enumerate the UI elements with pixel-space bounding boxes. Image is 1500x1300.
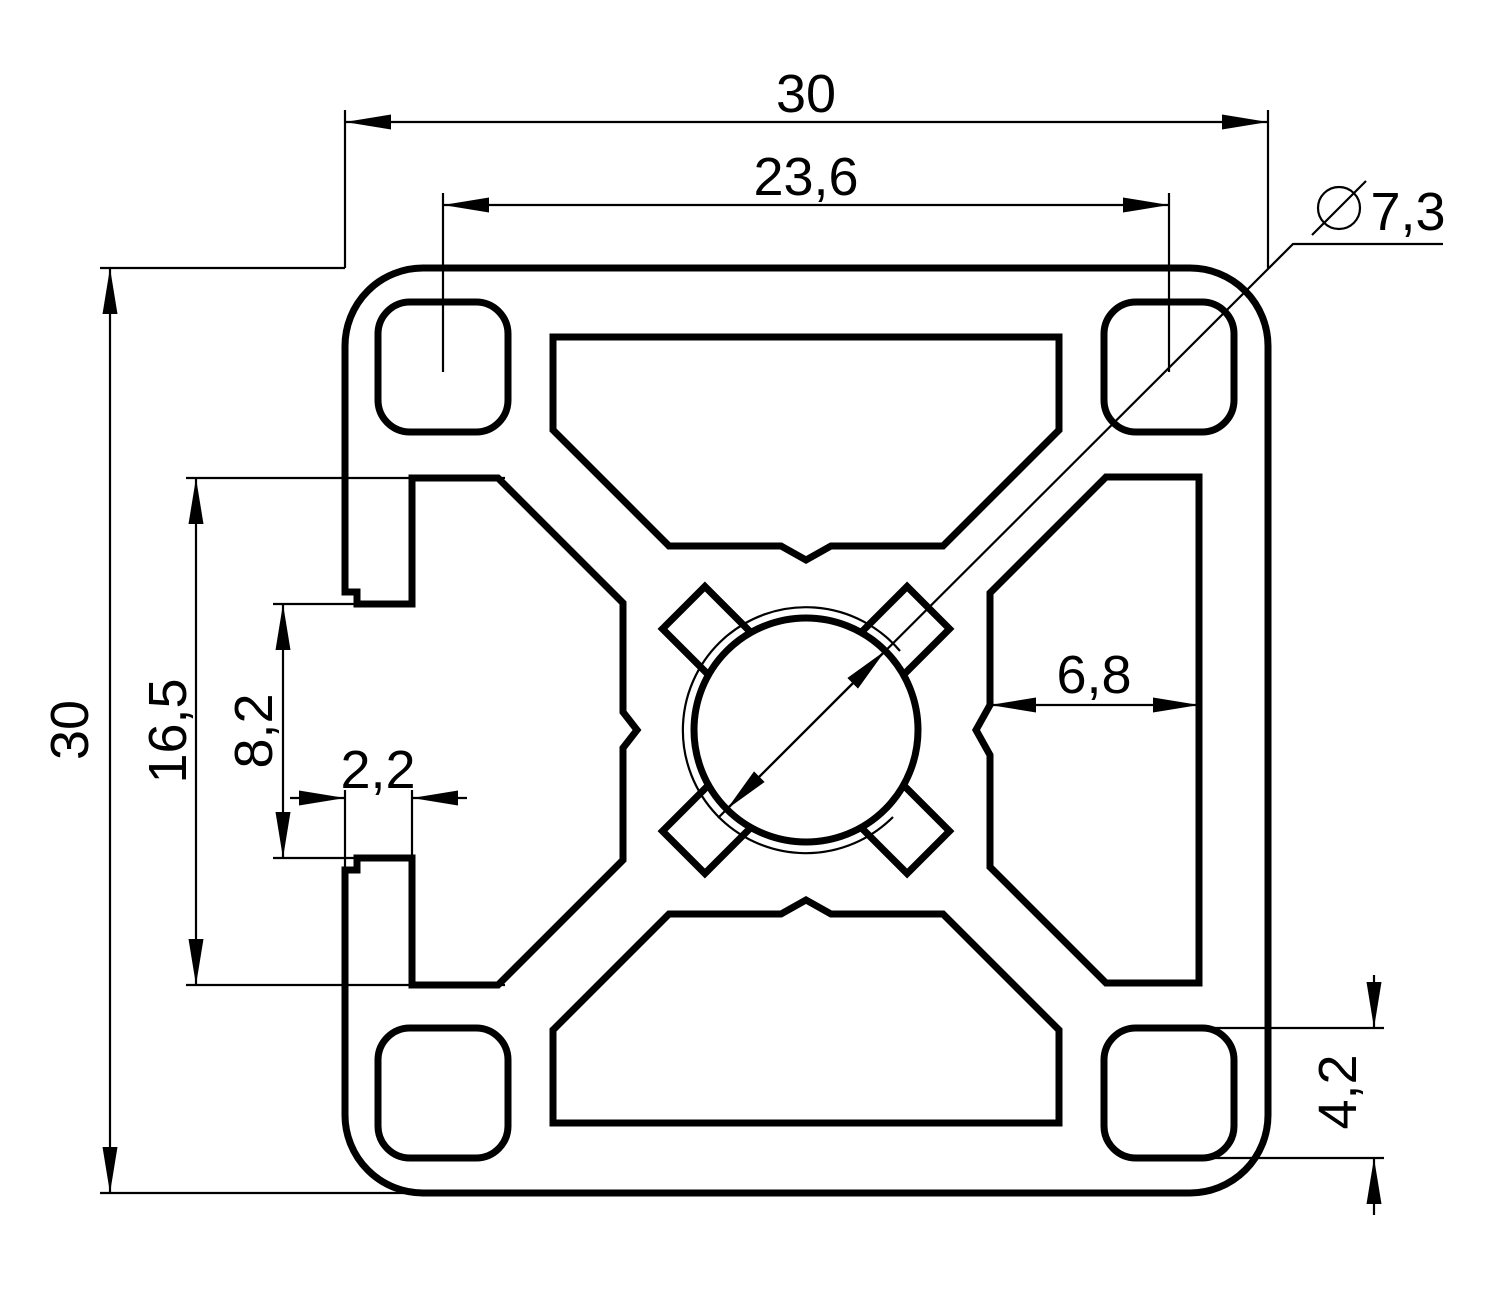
dim-slot-opening: 8,2 bbox=[224, 604, 284, 858]
dim-side-cavity-width: 6,8 bbox=[990, 645, 1199, 705]
dim-slot-lip-label: 2,2 bbox=[340, 740, 415, 800]
corner-hole-bottom-left bbox=[378, 1028, 508, 1158]
thread-reference-arc bbox=[683, 607, 900, 853]
dim-slot-opening-label: 8,2 bbox=[224, 693, 284, 768]
right-cavity-outline bbox=[976, 477, 1199, 983]
dim-overall-width: 30 bbox=[345, 64, 1268, 124]
corner-hole-bottom-right bbox=[1104, 1028, 1234, 1158]
bore-ear-north-west bbox=[663, 587, 751, 675]
dim-corner-hole-size: 4,2 bbox=[1308, 975, 1374, 1215]
bore-leader-line bbox=[718, 244, 1443, 818]
bottom-cavity-outline bbox=[553, 900, 1059, 1123]
top-cavity-outline bbox=[553, 337, 1059, 560]
extrusion-profile-technical-drawing: 30 23,6 30 16,5 8,2 2,2 bbox=[0, 0, 1500, 1300]
dim-corner-hole-spacing: 23,6 bbox=[443, 147, 1169, 207]
bore-ear-south-east bbox=[861, 785, 949, 873]
dim-overall-height: 30 bbox=[40, 268, 110, 1193]
dim-overall-width-label: 30 bbox=[776, 64, 836, 124]
dim-slot-lip: 2,2 bbox=[290, 740, 467, 800]
drawing-canvas: 30 23,6 30 16,5 8,2 2,2 bbox=[0, 0, 1500, 1300]
dim-side-cavity-width-label: 6,8 bbox=[1056, 645, 1131, 705]
dim-corner-hole-size-label: 4,2 bbox=[1308, 1054, 1368, 1129]
diameter-symbol-icon bbox=[1312, 181, 1366, 235]
dim-slot-cavity-depth-label: 16,5 bbox=[138, 678, 198, 783]
dim-corner-hole-spacing-label: 23,6 bbox=[753, 147, 858, 207]
dim-overall-height-label: 30 bbox=[40, 700, 100, 760]
dim-center-bore-label: 7,3 bbox=[1370, 182, 1445, 242]
dim-slot-cavity-depth: 16,5 bbox=[138, 478, 198, 985]
